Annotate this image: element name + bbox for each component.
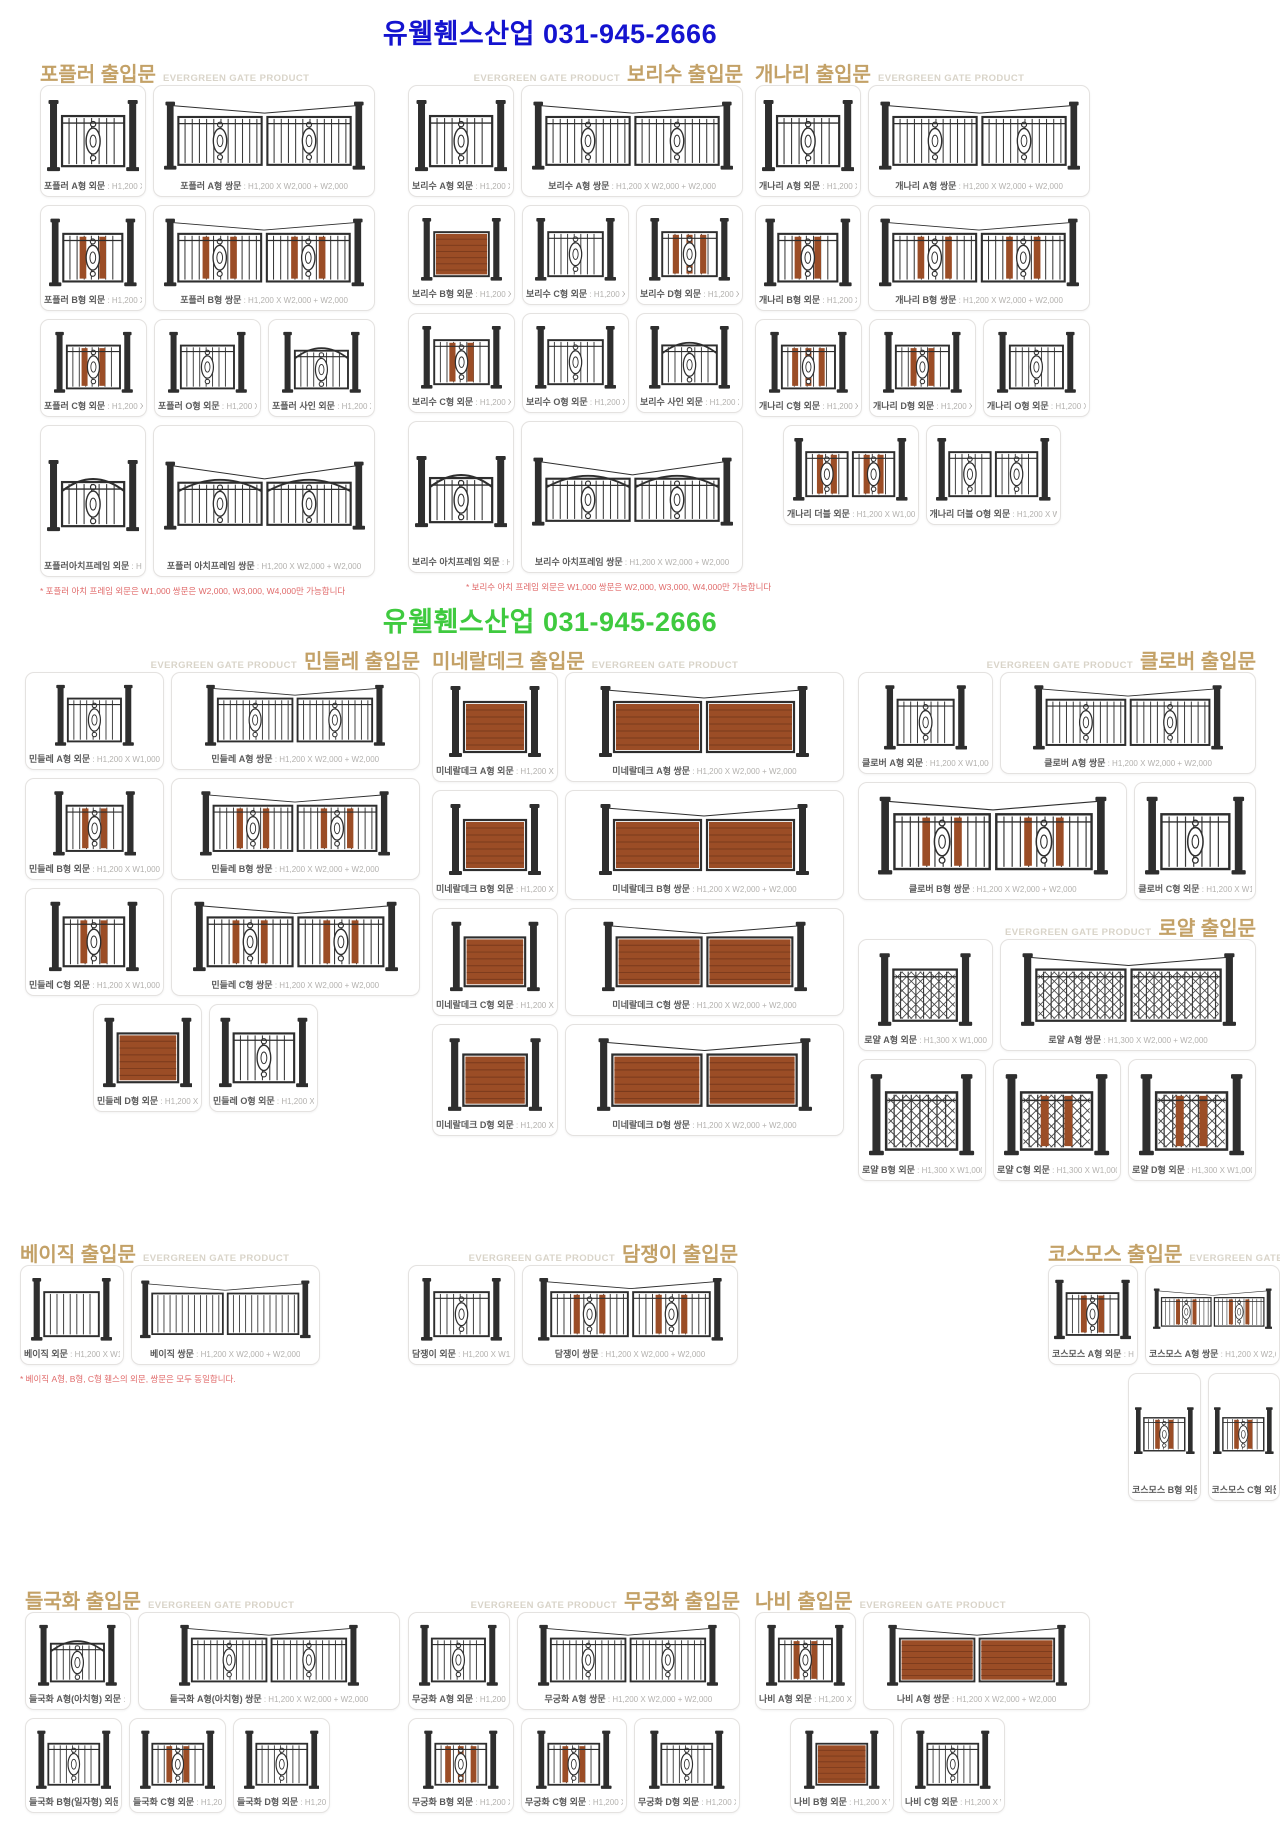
section-title: 포플러 출입문 [40,58,156,87]
section-title: 민들레 출입문 [304,645,420,674]
product-card[interactable]: 보리수 C형 외문 : H1,200 X W1,000 [408,313,515,413]
product-card[interactable]: 나비 A형 쌍문 : H1,200 X W2,000 + W2,000 [863,1612,1090,1710]
product-card[interactable]: 보리수 A형 쌍문 : H1,200 X W2,000 + W2,000 [521,85,743,197]
product-label: 보리수 C형 외문 : H1,200 X W1,000 [412,395,511,408]
gate-illustration [569,914,840,996]
product-row: 보리수 A형 외문 : H1,200 X W1,000보리수 A형 쌍문 : H… [408,85,743,197]
gate-illustration [44,325,143,397]
gate-illustration [412,1618,506,1690]
product-row: 들국화 B형(일자형) 외문 : H1,200 X W1,000들국화 C형 외… [25,1718,330,1813]
product-card[interactable]: 무궁화 B형 외문 : H1,200 X W1,000 [408,1718,514,1813]
product-card[interactable]: 민들레 C형 외문 : H1,200 X W1,000 [25,888,164,996]
product-row: 민들레 B형 외문 : H1,200 X W1,000민들레 B형 쌍문 : H… [25,778,420,880]
product-card[interactable]: 클로버 B형 쌍문 : H1,200 X W2,000 + W2,000 [858,782,1127,900]
product-card[interactable]: 개나리 더블 외문 : H1,200 X W1,000 [783,425,919,525]
product-label: 미네랄데크 B형 쌍문 : H1,200 X W2,000 + W2,000 [612,882,796,895]
product-size: : H1,200 X W1,000 [194,1798,222,1807]
product-card[interactable]: 보리수 O형 외문 : H1,200 X W1,000 [522,313,629,413]
product-size: : H1,200 X W2,000 + W2,000 [255,562,362,571]
product-label: 미네랄데크 A형 쌍문 : H1,200 X W2,000 + W2,000 [612,764,796,777]
product-name: 개나리 B형 외문 [759,295,820,305]
evergreen-tagline: EVERGREEN GATE PRODUCT [148,1600,294,1611]
gate-illustration [867,1618,1086,1690]
product-card[interactable]: 미네랄데크 D형 외문 : H1,200 X W1,000 [432,1024,558,1136]
section-title: 코스모스 출입문 [1048,1238,1182,1267]
product-name: 담쟁이 외문 [412,1349,456,1359]
product-card[interactable]: 들국화 A형(아치형) 쌍문 : H1,200 X W2,000 + W2,00… [138,1612,400,1710]
product-size: : H1,300 X W1,000 [1050,1166,1117,1175]
section-header-cosmos: 코스모스 출입문EVERGREEN GATE PRODUCT [1048,1238,1280,1262]
product-label: 미네랄데크 C형 쌍문 : H1,200 X W2,000 + W2,000 [612,998,796,1011]
product-card[interactable]: 들국화 B형(일자형) 외문 : H1,200 X W1,000 [25,1718,122,1813]
product-row: 개나리 B형 외문 : H1,200 X W1,000개나리 B형 쌍문 : H… [755,205,1090,311]
gate-illustration [569,678,840,762]
gate-illustration [97,1010,198,1092]
product-name: 로얄 B형 외문 [862,1165,915,1175]
gate-illustration [787,431,915,505]
product-name: 개나리 더블 외문 [787,509,850,519]
product-card[interactable]: 민들레 B형 외문 : H1,200 X W1,000 [25,778,164,880]
product-label: 클로버 A형 외문 : H1,200 X W1,000 [862,756,989,769]
product-size: : H1,200 X W2,000 + W2,000 [956,296,1063,305]
gate-illustration [158,325,257,397]
product-card[interactable]: 민들레 D형 외문 : H1,200 X W1,000 [93,1004,202,1112]
footnote-bodhi: * 보리수 아치 프레임 외문은 W1,000 쌍문은 W2,000, W3,0… [466,581,743,593]
product-label: 미네랄데크 B형 외문 : H1,200 X W1,000 [436,882,554,895]
product-name: 개나리 C형 외문 [759,401,820,411]
product-size: : H1,200 X W1,000 [701,290,739,299]
product-size: : H1,200 X W2,000 + W2,000 [970,885,1077,894]
product-card[interactable]: 보리수 C형 외문 : H1,200 X W1,000 [522,205,629,305]
product-name: 포플러 사인 외문 [272,401,335,411]
product-name: 들국화 A형(아치형) 외문 [29,1694,121,1704]
product-card[interactable]: 포플러 사인 외문 : H1,200 X W1,000 [268,319,375,417]
product-card[interactable]: 무궁화 A형 외문 : H1,200 X W1,000 [408,1612,510,1710]
product-card[interactable]: 로얄 B형 외문 : H1,300 X W1,000 [858,1059,986,1181]
product-row: 미네랄데크 A형 외문 : H1,200 X W1,000미네랄데크 A형 쌍문… [432,672,844,782]
evergreen-tagline: EVERGREEN GATE PRODUCT [860,1600,1006,1611]
product-card[interactable]: 민들레 B형 쌍문 : H1,200 X W2,000 + W2,000 [171,778,420,880]
product-label: 민들레 O형 외문 : H1,200 X W1,000 [213,1094,314,1107]
product-card[interactable]: 나비 C형 외문 : H1,200 X W1,000 [901,1718,1005,1813]
product-card[interactable]: 들국화 C형 외문 : H1,200 X W1,000 [129,1718,226,1813]
product-card[interactable]: 로얄 A형 쌍문 : H1,300 X W2,000 + W2,000 [1000,939,1256,1051]
gate-illustration [640,319,739,393]
product-card[interactable]: 포플러 아치프레임 쌍문 : H1,200 X W2,000 + W2,000 [153,425,375,577]
product-card[interactable]: 무궁화 C형 외문 : H1,200 X W1,000 [521,1718,627,1813]
product-card[interactable]: 코스모스 A형 외문 : H1,200 X W1,000 [1048,1265,1138,1365]
product-name: 무궁화 D형 외문 [638,1797,699,1807]
product-name: 무궁화 A형 쌍문 [544,1694,605,1704]
gate-illustration [133,1724,222,1793]
product-label: 로얄 C형 외문 : H1,300 X W1,000 [997,1163,1117,1176]
product-label: 로얄 D형 외문 : H1,300 X W1,000 [1132,1163,1252,1176]
product-label: 나비 A형 쌍문 : H1,200 X W2,000 + W2,000 [897,1692,1056,1705]
product-row: 보리수 아치프레임 외문 : H1,200 X W1,000보리수 아치프레임 … [408,421,743,573]
product-card[interactable]: 개나리 A형 쌍문 : H1,200 X W2,000 + W2,000 [868,85,1090,197]
product-name: 개나리 O형 외문 [987,401,1049,411]
product-size: : H1,200 X W2,000 + W2,000 [273,981,380,990]
footnote-poplar: * 포플러 아치 프레임 외문은 W1,000 쌍문은 W2,000, W3,0… [40,585,375,597]
gate-illustration [44,431,142,557]
product-label: 포플러아치프레임 외문 : H1,200 X W1,000 [44,559,142,572]
product-card[interactable]: 클로버 C형 외문 : H1,200 X W1,000 [1134,782,1256,900]
evergreen-tagline: EVERGREEN GATE PRODUCT [878,73,1024,84]
product-name: 들국화 D형 외문 [237,1797,298,1807]
product-size: : H1,200 X W1,000 [1010,510,1057,519]
product-card[interactable]: 코스모스 B형 외문 : H1,200 X W1,000 [1128,1373,1201,1501]
footnote-basic: * 베이직 A형, B형, C형 휀스의 외문, 쌍문은 모두 동일합니다. [20,1373,320,1385]
product-name: 포플러 A형 쌍문 [180,181,241,191]
section-clover: EVERGREEN GATE PRODUCT클로버 출입문클로버 A형 외문 :… [858,645,1256,908]
gate-illustration [175,678,416,750]
gate-illustration [759,91,857,177]
product-name: 로얄 A형 외문 [864,1035,917,1045]
product-card[interactable]: 클로버 A형 쌍문 : H1,200 X W2,000 + W2,000 [1000,672,1256,774]
section-daisy: 들국화 출입문EVERGREEN GATE PRODUCT들국화 A형(아치형)… [25,1585,400,1821]
product-label: 미네랄데크 C형 외문 : H1,200 X W1,000 [436,998,554,1011]
product-label: 클로버 B형 쌍문 : H1,200 X W2,000 + W2,000 [909,882,1077,895]
product-name: 코스모스 A형 외문 [1052,1349,1121,1359]
section-title: 클로버 출입문 [1140,645,1256,674]
product-label: 보리수 사인 외문 : H1,200 X W1,000 [640,395,739,408]
product-card[interactable]: 담쟁이 쌍문 : H1,200 X W2,000 + W2,000 [522,1265,738,1365]
product-card[interactable]: 민들레 A형 쌍문 : H1,200 X W2,000 + W2,000 [171,672,420,770]
product-card[interactable]: 보리수 B형 외문 : H1,200 X W1,000 [408,205,515,305]
product-name: 들국화 B형(일자형) 외문 [29,1797,118,1807]
product-card[interactable]: 포플러 O형 외문 : H1,200 X W1,000 [154,319,261,417]
product-label: 나비 A형 외문 : H1,200 X W1,000 [759,1692,852,1705]
section-royal: EVERGREEN GATE PRODUCT로얄 출입문로얄 A형 외문 : H… [858,912,1256,1189]
product-label: 무궁화 A형 외문 : H1,200 X W1,000 [412,1692,506,1705]
section-mindle: EVERGREEN GATE PRODUCT민들레 출입문민들레 A형 외문 :… [25,645,420,1120]
section-basic: 베이직 출입문EVERGREEN GATE PRODUCT베이직 외문 : H1… [20,1238,320,1385]
product-card[interactable]: 민들레 O형 외문 : H1,200 X W1,000 [209,1004,318,1112]
evergreen-tagline: EVERGREEN GATE PRODUCT [151,660,297,671]
product-name: 로얄 D형 외문 [1132,1165,1185,1175]
product-row: 개나리 더블 외문 : H1,200 X W1,000개나리 더블 O형 외문 … [783,425,1061,525]
product-card[interactable]: 미네랄데크 B형 쌍문 : H1,200 X W2,000 + W2,000 [565,790,844,900]
section-title: 로얄 출입문 [1158,912,1256,941]
product-label: 무궁화 A형 쌍문 : H1,200 X W2,000 + W2,000 [544,1692,712,1705]
company-phone-banner-middle: 유웰휀스산업 031-945-2666 [0,600,1100,639]
gate-illustration [862,945,989,1031]
product-size: : H1,200 X W1,000 [514,1001,554,1010]
product-card[interactable]: 미네랄데크 C형 쌍문 : H1,200 X W2,000 + W2,000 [565,908,844,1016]
product-name: 클로버 A형 쌍문 [1044,758,1105,768]
product-label: 무궁화 D형 외문 : H1,200 X W1,000 [638,1795,736,1808]
section-header-rose: EVERGREEN GATE PRODUCT무궁화 출입문 [408,1585,740,1609]
product-label: 보리수 O형 외문 : H1,200 X W1,000 [526,395,625,408]
product-size: : H1,200 X W1,000 [587,290,625,299]
gate-illustration [29,894,160,976]
gate-illustration [157,211,371,291]
product-size: : H1,200 X W1,000 [847,1798,890,1807]
product-name: 베이직 외문 [24,1349,68,1359]
section-title: 베이직 출입문 [20,1238,136,1267]
product-row: 코스모스 A형 외문 : H1,200 X W1,000코스모스 A형 쌍문 :… [1048,1265,1280,1365]
gate-illustration [862,1065,982,1161]
product-card[interactable]: 미네랄데크 B형 외문 : H1,200 X W1,000 [432,790,558,900]
product-name: 나비 A형 쌍문 [897,1694,950,1704]
gate-illustration [987,325,1086,397]
gate-illustration [237,1724,326,1793]
product-size: : H1,200 X W2,000 + W2,000 [241,296,348,305]
product-card[interactable]: 개나리 C형 외문 : H1,200 X W1,000 [755,319,862,417]
product-card[interactable]: 미네랄데크 D형 쌍문 : H1,200 X W2,000 + W2,000 [565,1024,844,1136]
product-card[interactable]: 나비 B형 외문 : H1,200 X W1,000 [790,1718,894,1813]
product-size: : H1,200 X W1,000 [812,1695,852,1704]
section-header-royal: EVERGREEN GATE PRODUCT로얄 출입문 [858,912,1256,936]
product-size: : H1,200 X W2,000 + W2,000 [690,1001,797,1010]
product-size: : H1,200 X W1,000 [820,182,857,191]
section-title: 담쟁이 출입문 [622,1238,738,1267]
product-card[interactable]: 개나리 B형 쌍문 : H1,200 X W2,000 + W2,000 [868,205,1090,311]
product-size: : H1,200 X W1,000 [473,398,511,407]
section-rose: EVERGREEN GATE PRODUCT무궁화 출입문무궁화 A형 외문 :… [408,1585,740,1821]
product-card[interactable]: 로얄 D형 외문 : H1,300 X W1,000 [1128,1059,1256,1181]
product-label: 포플러 B형 외문 : H1,200 X W1,000 [44,293,142,306]
gate-illustration [873,325,972,397]
product-card[interactable]: 클로버 A형 외문 : H1,200 X W1,000 [858,672,993,774]
product-row: 보리수 C형 외문 : H1,200 X W1,000보리수 O형 외문 : H… [408,313,743,413]
product-row: 민들레 C형 외문 : H1,200 X W1,000민들레 C형 쌍문 : H… [25,888,420,996]
product-card[interactable]: 로얄 C형 외문 : H1,300 X W1,000 [993,1059,1121,1181]
product-name: 민들레 A형 외문 [29,754,90,764]
product-label: 포플러 O형 외문 : H1,200 X W1,000 [158,399,257,412]
product-name: 포플러 B형 쌍문 [180,295,241,305]
section-bodhi: EVERGREEN GATE PRODUCT보리수 출입문보리수 A형 외문 :… [408,58,743,593]
product-label: 포플러 사인 외문 : H1,200 X W1,000 [272,399,371,412]
product-card[interactable]: 보리수 D형 외문 : H1,200 X W1,000 [636,205,743,305]
product-card[interactable]: 보리수 사인 외문 : H1,200 X W1,000 [636,313,743,413]
product-label: 포플러 C형 외문 : H1,200 X W1,000 [44,399,143,412]
product-name: 포플러 A형 외문 [44,181,105,191]
gate-illustration [526,1271,734,1345]
product-size: : H1,300 X W1,000 [915,1166,982,1175]
product-card[interactable]: 포플러 A형 쌍문 : H1,200 X W2,000 + W2,000 [153,85,375,197]
product-name: 로얄 A형 쌍문 [1048,1035,1101,1045]
product-name: 보리수 사인 외문 [640,397,703,407]
product-card[interactable]: 개나리 A형 외문 : H1,200 X W1,000 [755,85,861,197]
product-size: : H1,200 X W2,000 + W2,000 [623,558,730,567]
product-label: 담쟁이 외문 : H1,200 X W1,000 [412,1347,511,1360]
product-card[interactable]: 개나리 B형 외문 : H1,200 X W1,000 [755,205,861,311]
gate-illustration [569,796,840,880]
gate-illustration [1004,678,1252,754]
product-row: 담쟁이 외문 : H1,200 X W1,000담쟁이 쌍문 : H1,200 … [408,1265,738,1365]
product-card[interactable]: 포플러 A형 외문 : H1,200 X W1,000 [40,85,146,197]
product-row: 클로버 A형 외문 : H1,200 X W1,000클로버 A형 쌍문 : H… [858,672,1256,774]
product-card[interactable]: 민들레 A형 외문 : H1,200 X W1,000 [25,672,164,770]
gate-illustration [24,1271,120,1345]
product-label: 개나리 O형 외문 : H1,200 X W1,000 [987,399,1086,412]
product-card[interactable]: 포플러 B형 쌍문 : H1,200 X W2,000 + W2,000 [153,205,375,311]
product-label: 개나리 더블 외문 : H1,200 X W1,000 [787,507,915,520]
gate-illustration [44,91,142,177]
product-card[interactable]: 보리수 A형 외문 : H1,200 X W1,000 [408,85,514,197]
product-name: 민들레 A형 쌍문 [211,754,272,764]
gate-illustration [436,678,554,762]
product-label: 민들레 B형 쌍문 : H1,200 X W2,000 + W2,000 [211,862,379,875]
product-name: 보리수 A형 외문 [412,181,473,191]
product-card[interactable]: 개나리 O형 외문 : H1,200 X W1,000 [983,319,1090,417]
product-name: 보리수 아치프레임 쌍문 [535,557,623,567]
evergreen-tagline: EVERGREEN GATE PRODUCT [1189,1253,1280,1264]
product-label: 민들레 C형 쌍문 : H1,200 X W2,000 + W2,000 [211,978,379,991]
gate-illustration [759,325,858,397]
section-title: 개나리 출입문 [755,58,871,87]
section-header-mindle: EVERGREEN GATE PRODUCT민들레 출입문 [25,645,420,669]
product-row: 나비 B형 외문 : H1,200 X W1,000나비 C형 외문 : H1,… [790,1718,1005,1813]
product-size: : H1,200 X W2,000 + W2,000 [606,1695,713,1704]
product-name: 민들레 C형 외문 [29,980,90,990]
gate-illustration [44,211,142,291]
product-size: : H1,200 X W1,000 [105,182,142,191]
section-butterfly: 나비 출입문EVERGREEN GATE PRODUCT나비 A형 외문 : H… [755,1585,1090,1821]
product-name: 민들레 B형 외문 [29,864,90,874]
gate-illustration [759,211,857,291]
product-size: : H1,200 X W1,000 [699,1798,736,1807]
product-label: 미네랄데크 D형 외문 : H1,200 X W1,000 [436,1118,554,1131]
evergreen-tagline: EVERGREEN GATE PRODUCT [143,1253,289,1264]
product-label: 들국화 B형(일자형) 외문 : H1,200 X W1,000 [29,1795,118,1808]
product-size: : H1,200 X W1,000 [298,1798,326,1807]
product-card[interactable]: 개나리 더블 O형 외문 : H1,200 X W1,000 [926,425,1062,525]
product-label: 들국화 C형 외문 : H1,200 X W1,000 [133,1795,222,1808]
product-size: : H1,200 X W2,000 + W2,000 [194,1350,301,1359]
product-size: : H1,200 X W2,000 + W2,000 [690,885,797,894]
gate-illustration [638,1724,736,1793]
product-row: 포플러 A형 외문 : H1,200 X W1,000포플러 A형 쌍문 : H… [40,85,375,197]
product-name: 포플러 B형 외문 [44,295,105,305]
product-card[interactable]: 들국화 A형(아치형) 외문 : H1,200 X W1,000 [25,1612,131,1710]
product-size: : H1,200 X W1,000 [1049,402,1086,411]
product-card[interactable]: 나비 A형 외문 : H1,200 X W1,000 [755,1612,856,1710]
product-row: 나비 A형 외문 : H1,200 X W1,000나비 A형 쌍문 : H1,… [755,1612,1090,1710]
product-card[interactable]: 포플러아치프레임 외문 : H1,200 X W1,000 [40,425,146,577]
product-size: : H1,200 X W2,000 + W2,000 [690,767,797,776]
product-card[interactable]: 베이직 외문 : H1,200 X W1,000 [20,1265,124,1365]
product-card[interactable]: 미네랄데크 A형 외문 : H1,200 X W1,000 [432,672,558,782]
product-label: 개나리 B형 쌍문 : H1,200 X W2,000 + W2,000 [895,293,1063,306]
product-label: 개나리 A형 외문 : H1,200 X W1,000 [759,179,857,192]
product-size: : H1,300 X W1,000 [917,1036,987,1045]
gate-illustration [872,91,1086,177]
product-size: : H1,200 X W1,000 [820,402,858,411]
product-label: 무궁화 B형 외문 : H1,200 X W1,000 [412,1795,510,1808]
section-gaenari: 개나리 출입문EVERGREEN GATE PRODUCT개나리 A형 외문 :… [755,58,1090,533]
gate-illustration [213,1010,314,1092]
product-name: 미네랄데크 A형 쌍문 [612,766,690,776]
product-size: : H1,200 X W1,000 [1121,1350,1133,1359]
product-card[interactable]: 무궁화 A형 쌍문 : H1,200 X W2,000 + W2,000 [517,1612,740,1710]
product-label: 포플러 A형 외문 : H1,200 X W1,000 [44,179,142,192]
product-label: 코스모스 B형 외문 : H1,200 X W1,000 [1132,1483,1197,1496]
gate-illustration [525,427,739,553]
product-card[interactable]: 담쟁이 외문 : H1,200 X W1,000 [408,1265,515,1365]
gate-illustration [759,1618,852,1690]
product-name: 클로버 A형 외문 [862,758,923,768]
product-card[interactable]: 로얄 A형 외문 : H1,300 X W1,000 [858,939,993,1051]
product-label: 민들레 B형 외문 : H1,200 X W1,000 [29,862,160,875]
gate-illustration [29,784,160,860]
product-label: 담쟁이 쌍문 : H1,200 X W2,000 + W2,000 [555,1347,705,1360]
product-name: 민들레 D형 외문 [97,1096,158,1106]
product-size: : H1,200 X W1,000 [958,1798,1001,1807]
product-name: 미네랄데크 B형 쌍문 [612,884,690,894]
product-card[interactable]: 들국화 D형 외문 : H1,200 X W1,000 [233,1718,330,1813]
product-row: 포플러 B형 외문 : H1,200 X W1,000포플러 B형 쌍문 : H… [40,205,375,311]
section-mineral: 미네랄데크 출입문EVERGREEN GATE PRODUCT미네랄데크 A형 … [432,645,844,1144]
product-label: 들국화 A형(아치형) 쌍문 : H1,200 X W2,000 + W2,00… [170,1692,369,1705]
product-card[interactable]: 포플러 B형 외문 : H1,200 X W1,000 [40,205,146,311]
product-card[interactable]: 미네랄데크 C형 외문 : H1,200 X W1,000 [432,908,558,1016]
product-row: 포플러아치프레임 외문 : H1,200 X W1,000포플러 아치프레임 쌍… [40,425,375,577]
product-name: 나비 C형 외문 [905,1797,958,1807]
product-card[interactable]: 무궁화 D형 외문 : H1,200 X W1,000 [634,1718,740,1813]
product-card[interactable]: 보리수 아치프레임 쌍문 : H1,200 X W2,000 + W2,000 [521,421,743,573]
gate-illustration [412,211,511,285]
product-label: 로얄 A형 쌍문 : H1,300 X W2,000 + W2,000 [1048,1033,1207,1046]
product-card[interactable]: 포플러 C형 외문 : H1,200 X W1,000 [40,319,147,417]
gate-illustration [272,325,371,397]
product-name: 포플러 C형 외문 [44,401,105,411]
product-name: 포플러 O형 외문 [158,401,220,411]
product-name: 미네랄데크 C형 외문 [436,1000,514,1010]
gate-illustration [412,1271,511,1345]
product-size: : H1,200 X W2,000 + W2,000 [1218,1350,1276,1359]
gate-illustration [1138,788,1252,880]
product-size: : H1,200 X W1,000 [90,865,159,874]
section-title: 미네랄데크 출입문 [432,645,585,674]
product-label: 클로버 A형 쌍문 : H1,200 X W2,000 + W2,000 [1044,756,1212,769]
gate-illustration [29,678,160,750]
product-card[interactable]: 베이직 쌍문 : H1,200 X W2,000 + W2,000 [131,1265,320,1365]
product-size: : H1,200 X W2,000 + W2,000 [599,1350,706,1359]
product-row: 로얄 B형 외문 : H1,300 X W1,000로얄 C형 외문 : H1,… [858,1059,1256,1181]
product-row: 포플러 C형 외문 : H1,200 X W1,000포플러 O형 외문 : H… [40,319,375,417]
product-label: 개나리 C형 외문 : H1,200 X W1,000 [759,399,858,412]
product-row: 무궁화 A형 외문 : H1,200 X W1,000무궁화 A형 쌍문 : H… [408,1612,740,1710]
product-name: 개나리 D형 외문 [873,401,934,411]
product-card[interactable]: 개나리 D형 외문 : H1,200 X W1,000 [869,319,976,417]
product-card[interactable]: 코스모스 A형 쌍문 : H1,200 X W2,000 + W2,000 [1145,1265,1280,1365]
product-name: 민들레 C형 쌍문 [211,980,272,990]
product-size: : H1,200 X W1,000 [514,885,554,894]
product-row: 민들레 D형 외문 : H1,200 X W1,000민들레 O형 외문 : H… [93,1004,318,1112]
product-label: 보리수 C형 외문 : H1,200 X W1,000 [526,287,625,300]
product-card[interactable]: 미네랄데크 A형 쌍문 : H1,200 X W2,000 + W2,000 [565,672,844,782]
product-name: 포플러 아치프레임 쌍문 [167,561,255,571]
product-name: 코스모스 C형 외문 [1212,1485,1277,1495]
product-name: 나비 B형 외문 [794,1797,847,1807]
product-card[interactable]: 민들레 C형 쌍문 : H1,200 X W2,000 + W2,000 [171,888,420,996]
product-row: 미네랄데크 C형 외문 : H1,200 X W1,000미네랄데크 C형 쌍문… [432,908,844,1016]
product-label: 미네랄데크 A형 외문 : H1,200 X W1,000 [436,764,554,777]
product-card[interactable]: 코스모스 C형 외문 : H1,200 X W1,000 [1208,1373,1280,1501]
product-size: : H1,200 X W1,000 [129,562,142,571]
gate-illustration [175,894,416,976]
product-size: : H1,200 X W1,000 [820,296,857,305]
gate-illustration [569,1030,840,1116]
gate-illustration [412,319,511,393]
gate-illustration [640,211,739,285]
product-size: : H1,200 X W1,000 [158,1097,198,1106]
product-card[interactable]: 보리수 아치프레임 외문 : H1,200 X W1,000 [408,421,514,573]
section-ivy: EVERGREEN GATE PRODUCT담쟁이 출입문담쟁이 외문 : H1… [408,1238,738,1373]
gate-illustration [862,678,989,754]
